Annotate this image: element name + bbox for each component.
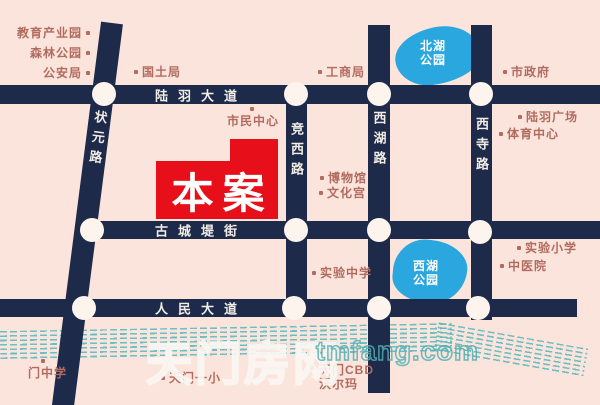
- poi-marker-dot: [134, 70, 138, 74]
- poi-luyu-plaza: 陆羽广场: [514, 110, 578, 124]
- node-jingxi-luyu: [284, 82, 308, 106]
- poi-marker-dot: [86, 31, 90, 35]
- poi-middle-school: 门中学: [28, 366, 67, 380]
- poi-education-park: 教育产业园: [14, 26, 94, 40]
- poi-commerce-bureau: 工商局: [314, 65, 365, 79]
- road-jingxi: 竞西路: [286, 95, 307, 317]
- poi-marker-dot: [319, 191, 323, 195]
- node-zhuangyuan-luyu: [92, 82, 116, 106]
- node-xisi-renmin: [466, 296, 490, 320]
- road-jingxi-name: 竞西路: [287, 122, 306, 182]
- poi-land-bureau: 国土局: [130, 65, 181, 79]
- poi-museum: 博物馆: [316, 171, 367, 185]
- poi-marker-dot: [517, 246, 521, 250]
- poi-public-security: 公安局: [14, 66, 94, 80]
- node-xihu-gucheng: [367, 218, 391, 242]
- poi-marker-dot: [312, 271, 316, 275]
- poi-city-hall: 市政府: [499, 65, 550, 79]
- poi-marker-dot: [86, 51, 90, 55]
- poi-marker-dot: [86, 71, 90, 75]
- node-jingxi-gucheng: [284, 218, 308, 242]
- node-zhuangyuan-gucheng: [80, 218, 104, 242]
- poi-experimental-primary-school: 实验小学: [513, 241, 577, 255]
- watermark-chinese: 天门房网: [146, 328, 342, 394]
- location-map: 北湖 公园 西湖 公园 陆羽大道 古城堤街 人民大道 状元路 竞西路 西湖路 西…: [0, 0, 600, 405]
- node-xisi-gucheng: [468, 220, 492, 244]
- node-xihu-luyu: [367, 82, 391, 106]
- poi-middle-school-dot: [41, 359, 45, 363]
- poi-culture-palace: 文化宫: [315, 186, 366, 200]
- road-xisi: 西寺路: [471, 25, 492, 320]
- poi-sports-center: 体育中心: [495, 127, 559, 141]
- site-label: 本案: [157, 164, 279, 216]
- node-xihu-renmin: [367, 296, 391, 320]
- poi-civic-center-dot: [250, 107, 254, 111]
- road-luyu-name: 陆羽大道: [155, 85, 247, 104]
- poi-marker-dot: [320, 176, 324, 180]
- node-xisi-luyu: [469, 82, 493, 106]
- poi-marker-dot: [500, 264, 504, 268]
- poi-civic-center: 市民中心: [227, 114, 279, 128]
- node-zhuangyuan-renmin: [72, 296, 96, 320]
- road-xihu-name: 西湖路: [370, 111, 389, 171]
- west-lake-label: 西湖 公园: [398, 253, 454, 293]
- road-zhuangyuan-name: 状元路: [84, 109, 110, 171]
- poi-marker-dot: [503, 70, 507, 74]
- watermark-domain: tmfang.com: [316, 336, 479, 367]
- poi-marker-dot: [499, 132, 503, 136]
- poi-forest-park: 森林公园: [14, 46, 94, 60]
- poi-marker-dot: [318, 70, 322, 74]
- road-gucheng-name: 古城堤街: [155, 221, 247, 240]
- road-xisi-name: 西寺路: [472, 117, 491, 177]
- poi-marker-dot: [518, 115, 522, 119]
- poi-tcm-hospital: 中医院: [496, 259, 547, 273]
- road-gucheng-street: 古城堤街: [78, 221, 600, 239]
- poi-experimental-middle-school: 实验中学: [308, 266, 372, 280]
- north-lake-label: 北湖 公园: [403, 33, 463, 73]
- road-renmin-name: 人民大道: [155, 299, 247, 318]
- node-jingxi-renmin: [282, 296, 306, 320]
